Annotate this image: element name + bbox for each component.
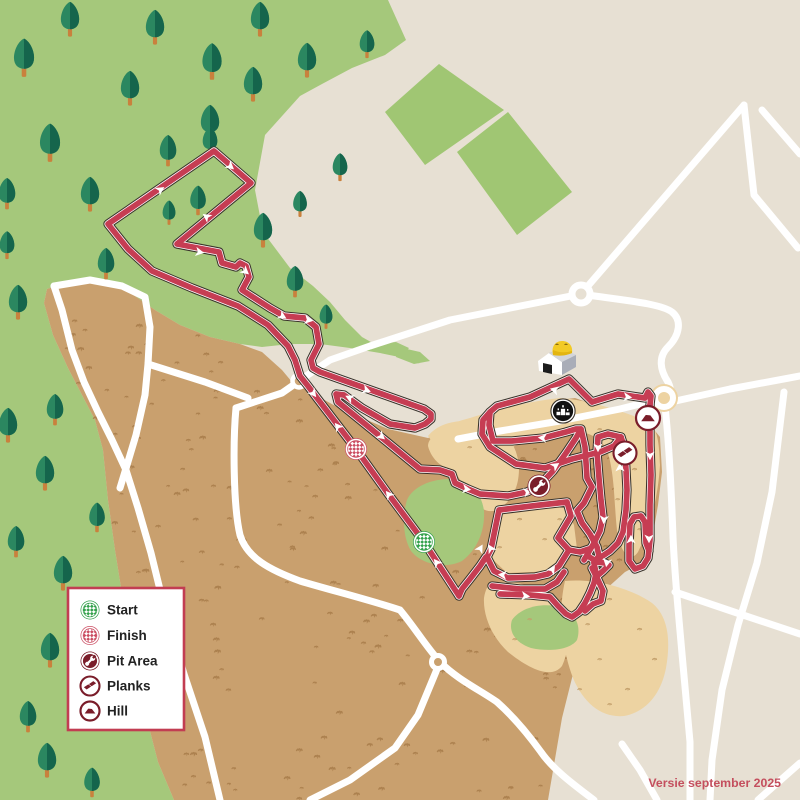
svg-text:Pit Area: Pit Area bbox=[107, 654, 158, 669]
svg-text:Finish: Finish bbox=[107, 628, 147, 643]
svg-text:Start: Start bbox=[107, 603, 138, 618]
svg-text:Hill: Hill bbox=[107, 704, 128, 719]
svg-text:Versie september 2025: Versie september 2025 bbox=[648, 776, 781, 790]
svg-text:Planks: Planks bbox=[107, 679, 151, 694]
